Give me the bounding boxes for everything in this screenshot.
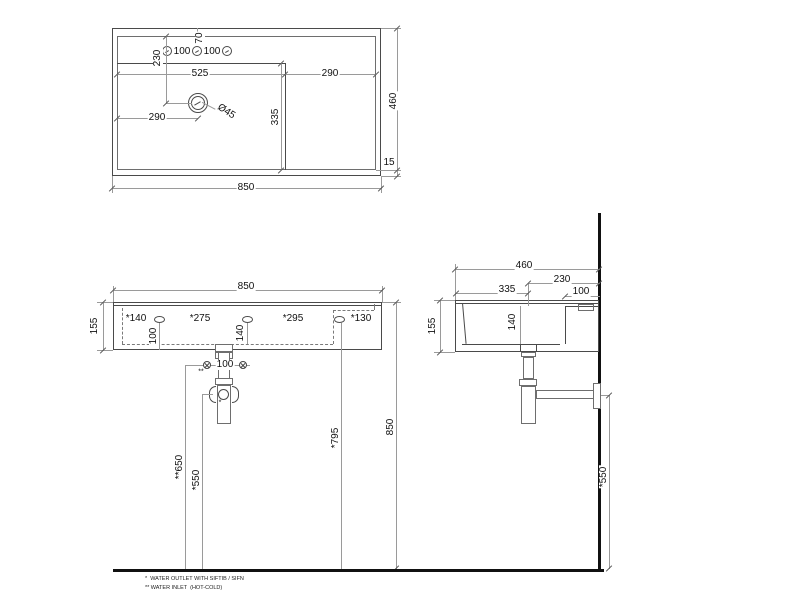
dim-top-height: 460	[389, 92, 399, 111]
side-bowl-bottom	[462, 344, 560, 345]
dim-line-140s	[520, 306, 521, 344]
dim-front-to-drain: 335	[498, 285, 517, 295]
side-bowl-back-wall	[565, 306, 566, 344]
technical-drawing-washbasin: 100 100 70 Ø45 525 290 230 290 335 460	[0, 0, 800, 600]
ext-850-left	[112, 176, 113, 193]
dim-line-335s	[456, 293, 528, 294]
dim-hole-spacing-1: 100	[173, 47, 192, 57]
deck-hole-2	[242, 316, 253, 323]
dim-550-connector	[202, 394, 213, 395]
inlet-mark: **	[197, 369, 204, 376]
trap-outlet-mark: *	[218, 400, 223, 407]
faucet-hole-center	[192, 46, 202, 56]
ext-230s	[528, 283, 529, 306]
dim-rim-height: 155	[90, 317, 100, 336]
ext-f850v-top	[382, 302, 401, 303]
drain-flange	[215, 344, 233, 352]
top-bowl-right-edge	[285, 63, 286, 170]
side-drain-left	[520, 344, 521, 351]
dim-line-230	[166, 36, 167, 103]
dim-side-depth: 460	[515, 261, 534, 271]
dim-total-height: 850	[386, 418, 396, 437]
front-step-dashed-v2	[374, 304, 375, 310]
ext-155-top	[97, 302, 113, 303]
dim-hole-offset: 70	[195, 31, 205, 44]
side-trap-coupling	[519, 379, 537, 386]
dim-line-hole-100	[159, 323, 160, 350]
dim-side-drain-height: 140	[508, 313, 518, 332]
dim-rim: 15	[382, 158, 395, 168]
dim-line-550s	[609, 395, 610, 569]
front-step-dashed-h	[333, 310, 374, 311]
dim-outlet-height: *550	[192, 469, 202, 492]
dim-holes-height: *795	[331, 427, 341, 450]
dim-line-f850v	[396, 302, 397, 569]
dim-side-outlet-height: *550	[599, 466, 609, 489]
mounting-bracket	[578, 304, 594, 311]
dim-line-155s	[440, 300, 441, 352]
faucet-hole-right	[222, 46, 232, 56]
dim-front-width: 850	[237, 282, 256, 292]
dim-front-275: *275	[189, 314, 212, 324]
dim-hole-height: 100	[149, 327, 159, 346]
dim-top-width: 850	[237, 183, 256, 193]
ext-850-right	[381, 176, 382, 193]
side-trap-bottle	[521, 386, 536, 424]
dim-line-650	[185, 365, 186, 569]
dim-bowl-width: 525	[191, 69, 210, 79]
dim-inlet-spacing: 100	[216, 360, 235, 370]
deck-hole-1	[154, 316, 165, 323]
side-drain-right	[536, 344, 537, 351]
dim-side-rim-height: 155	[428, 317, 438, 336]
dim-drain-offset-x: 290	[148, 113, 167, 123]
dim-deck-depth: 100	[572, 287, 591, 297]
dim-drain-to-wall: 230	[553, 275, 572, 285]
floor-line	[113, 569, 604, 572]
dim-drain-height: 140	[236, 324, 246, 343]
ext-155-bottom	[97, 350, 113, 351]
trap-coupling	[215, 378, 233, 385]
wall-escutcheon	[593, 383, 601, 409]
dim-front-140: *140	[125, 314, 148, 324]
trap-circle	[218, 389, 229, 400]
dim-line-155	[103, 302, 104, 350]
dim-inlet-height: **650	[175, 454, 185, 480]
dim-line-795	[341, 323, 342, 569]
dim-deck-width: 290	[321, 69, 340, 79]
dim-front-295: *295	[282, 314, 305, 324]
faucet-hole-left	[162, 46, 172, 56]
inlet-symbol-right	[239, 361, 247, 369]
dim-line-230-connector	[166, 103, 192, 104]
dim-line-drain-140	[247, 323, 248, 344]
footnote-water-inlet: ** WATER INLET (HOT-COLD)	[145, 584, 222, 594]
side-tailpipe	[523, 357, 534, 379]
dim-line-550	[202, 394, 203, 569]
dim-drain-offset-y: 230	[153, 49, 163, 68]
dim-line-335	[281, 63, 282, 170]
front-rim-line	[113, 305, 382, 306]
top-bowl-top-edge	[117, 63, 285, 64]
dim-bowl-depth: 335	[271, 108, 281, 127]
dim-front-130: *130	[350, 314, 373, 324]
dim-hole-spacing-2: 100	[203, 47, 222, 57]
front-step-dashed-v	[333, 310, 334, 344]
deck-hole-3	[334, 316, 345, 323]
front-bowl-left-dashed	[122, 308, 123, 344]
trap-inlet-right	[232, 386, 239, 403]
wall-outlet-pipe	[536, 390, 596, 399]
